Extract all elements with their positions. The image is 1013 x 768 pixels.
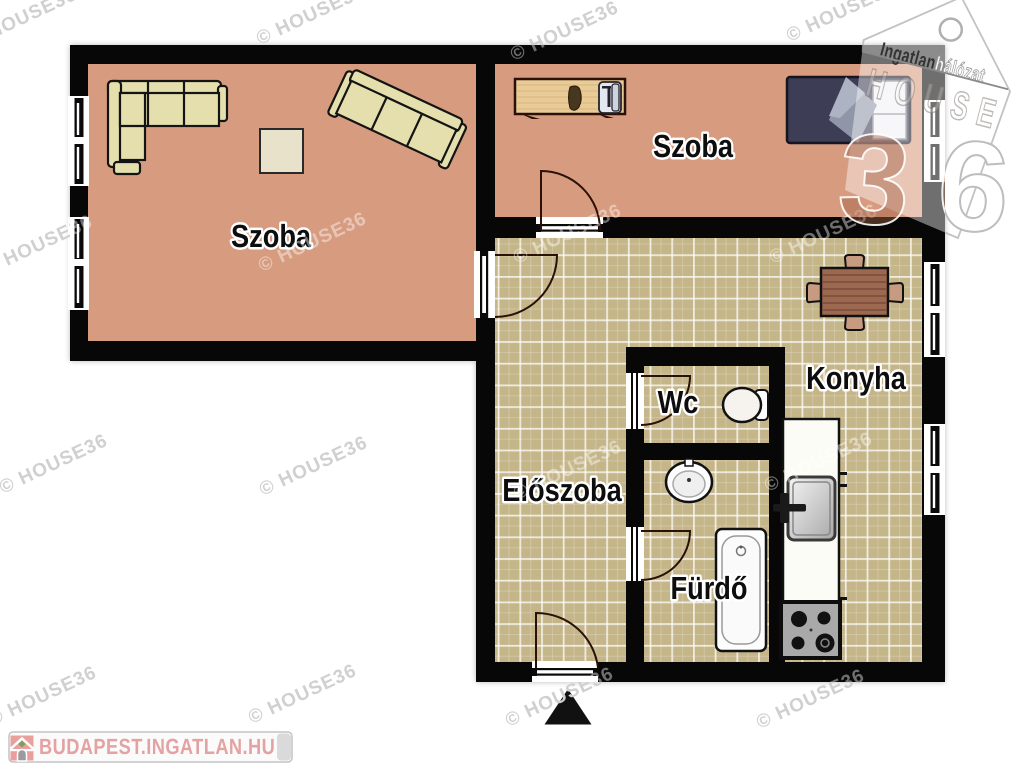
svg-text:Fürdő: Fürdő: [670, 570, 747, 606]
svg-text:Konyha: Konyha: [806, 360, 906, 396]
svg-text:Szoba: Szoba: [653, 128, 733, 164]
svg-text:BUDAPEST.INGATLAN.HU: BUDAPEST.INGATLAN.HU: [39, 734, 275, 759]
svg-text:Wc: Wc: [658, 384, 699, 420]
